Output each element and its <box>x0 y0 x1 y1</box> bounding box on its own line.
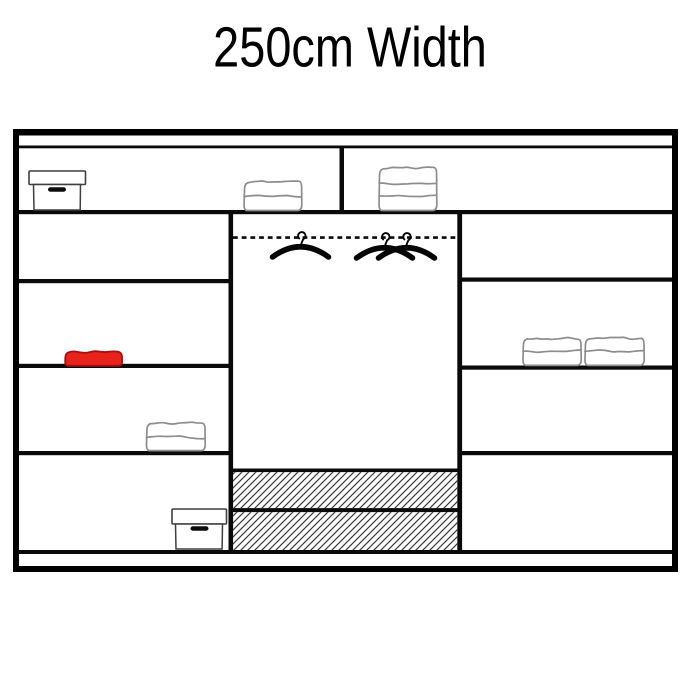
svg-text:250cm Width: 250cm Width <box>213 16 487 79</box>
